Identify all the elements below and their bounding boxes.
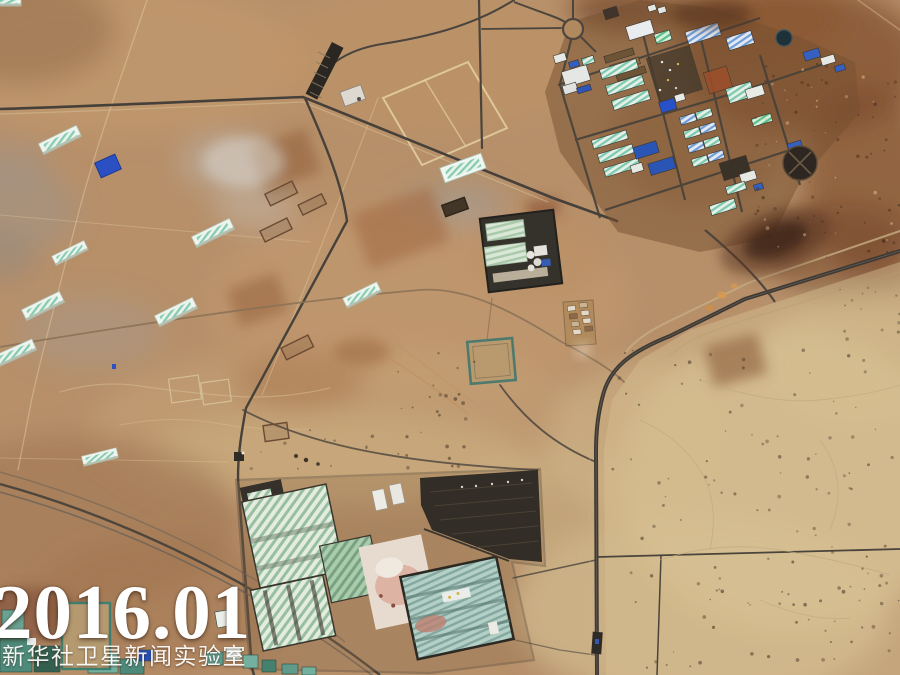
main-plant-south — [234, 452, 545, 674]
central-compound — [480, 210, 562, 292]
tiny-blue-marker — [112, 364, 116, 369]
dark-pond — [776, 30, 792, 46]
date-overlay: 2016.01 — [0, 574, 251, 651]
satellite-image: 2016.01 新华社卫星新闻实验室 — [0, 0, 900, 675]
roundabout — [563, 19, 583, 39]
watermark-label: 新华社卫星新闻实验室 — [2, 643, 247, 671]
